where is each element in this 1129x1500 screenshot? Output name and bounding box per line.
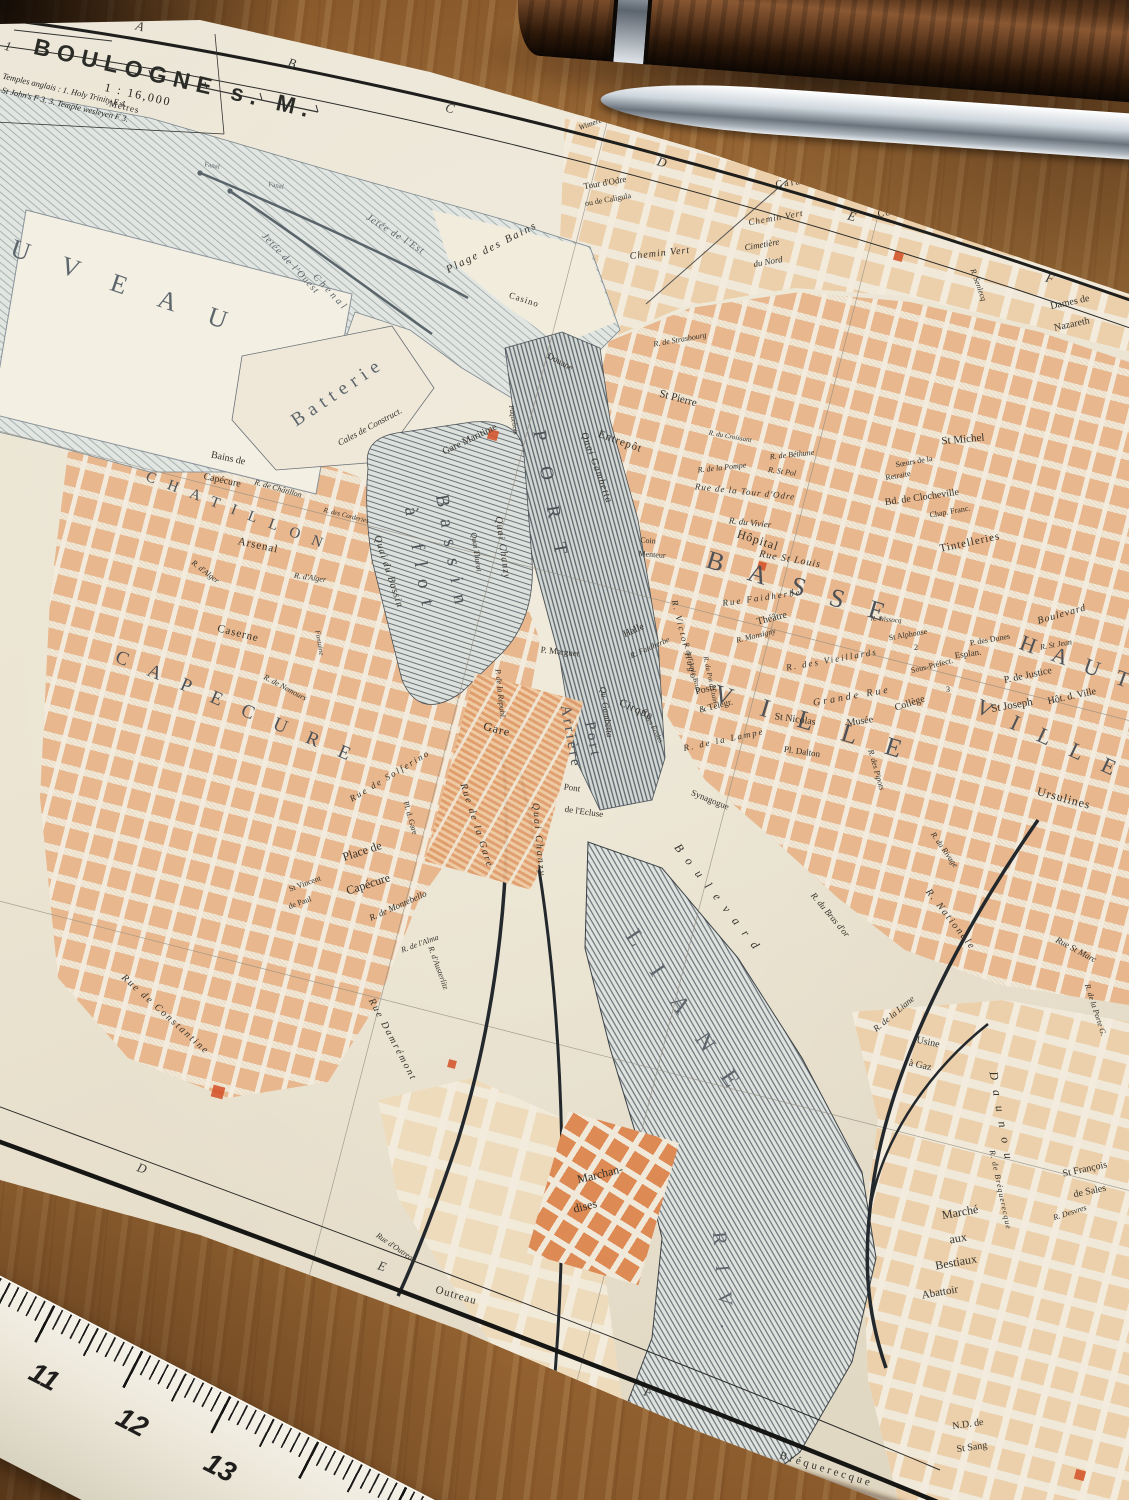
map-label: Arrière [557, 704, 583, 770]
map-label: St Michel [941, 433, 985, 448]
map-label: R. de la Liane [872, 994, 916, 1033]
map-label: Rue Faidherbe [722, 588, 802, 608]
map-label: R. Faidherbe [629, 636, 671, 660]
map-label: ou de Caligula [584, 192, 631, 208]
map-label: 2 [914, 644, 918, 652]
map-label: Bains de [210, 451, 246, 468]
map-label: 3 [946, 686, 950, 694]
map-label: R. du Bras d'or [809, 891, 851, 939]
map-label: Collège [894, 694, 927, 713]
map-label: Quai du Bassin [372, 534, 405, 609]
map-label: Rue de Constantine [119, 973, 211, 1057]
map-label: Chemin Vert [748, 209, 804, 228]
map-label: P. de la Républ. [493, 669, 506, 720]
map-label: Dames de [1050, 294, 1091, 312]
map-label: Jetée de l'Est [364, 213, 426, 257]
map-label: Cimetière [744, 238, 780, 253]
map-label: Menteur [638, 550, 666, 560]
map-label: Synagogue [690, 788, 730, 811]
map-label: Quai Thurot [469, 532, 482, 572]
map-label: Gare [482, 720, 511, 738]
map-label: Théâtre [756, 610, 788, 627]
map-label: Grande Rue [812, 685, 891, 708]
map-label: de l'Ecluse [564, 805, 604, 819]
map-label: dises [572, 1197, 598, 1214]
map-label: Port [581, 720, 602, 759]
map-label: Quai Chanzy [530, 802, 546, 877]
map-label: Outreau [434, 1285, 478, 1307]
map-label: N.D. de [952, 1418, 984, 1432]
grid-letter: F [1044, 271, 1055, 286]
map-label: Place de [341, 839, 383, 863]
grid-letter: D [656, 154, 669, 169]
map-label: St Sang [956, 1441, 988, 1455]
map-label: Bd. de Clocheville [884, 488, 959, 508]
map-label: Qu. Gambetta [598, 686, 614, 738]
map-label: Entrepôt [597, 429, 644, 455]
map-label: R. de Strasbourg [653, 331, 707, 348]
grid-letter: E [376, 1259, 388, 1274]
map-label: Casino [508, 291, 540, 309]
map-label: P. de Justice [1003, 666, 1053, 686]
ruler-number: 14 [287, 1492, 329, 1500]
map-label: R. de la Porte G. [1083, 983, 1107, 1037]
map-label: Tour d'Odre [583, 175, 627, 191]
map-label: Jetée de l'Ouest [259, 232, 320, 297]
map-label: RIV. [709, 1231, 739, 1349]
map-label: Pl. d. Gare [401, 800, 418, 835]
map-label: R. de Nemours [262, 673, 308, 702]
map-label: Plage des Bains [445, 220, 540, 276]
map-label: Hôpital [736, 528, 781, 553]
ruler-number: 11 [24, 1356, 65, 1398]
map-label: Retraite [885, 470, 911, 482]
pen-ring [609, 0, 658, 64]
map-label: Capécure [345, 871, 392, 896]
map-label: Rue de la Gare [458, 782, 495, 869]
map-label: de Sales [1073, 1184, 1107, 1201]
map-label: Quai Chanzy [493, 516, 512, 580]
map-label: Chap. Franc. [929, 504, 971, 519]
map-label: R. d'Alger [293, 572, 326, 584]
map-label: R. St Pol [767, 466, 796, 478]
map-label: R. de la Lampe [683, 727, 766, 753]
map-label: St Vincent [288, 875, 322, 894]
grid-letter: D [136, 1160, 149, 1175]
map-label: LIANE [621, 925, 759, 1114]
map-label: PORT [529, 429, 574, 581]
map-label: Nazareth [1053, 316, 1090, 333]
map-label: Usine [916, 1036, 941, 1051]
map-label: Boulevard [1036, 603, 1087, 626]
map-label: Gare Maritime [441, 423, 499, 458]
ruler-number: 12 [111, 1401, 153, 1444]
map-label: Bestiaux [934, 1252, 977, 1271]
map-label: R. Nationale [923, 888, 977, 953]
map-label: Arsenal [237, 536, 280, 555]
map-label: de Paul [287, 895, 312, 911]
map-label: Pont [563, 782, 581, 793]
map-label: R. du Vivier [728, 516, 771, 529]
map-label: Paquebots [507, 405, 519, 435]
grid-letter: E [846, 209, 857, 224]
map-label: P. Marguet [540, 645, 580, 658]
map-label: R. Monsigny [735, 627, 776, 645]
map-label: Fontaine [313, 630, 324, 656]
map-label: R. d'Alger [190, 559, 220, 585]
map-label: R. Desvres [1052, 1204, 1087, 1222]
map-label: R. d'Austerlitz [427, 945, 450, 990]
map-label: Douane [546, 351, 575, 372]
grid-letter: C [444, 101, 456, 116]
photo-antique-map-on-desk: BOULOGNE s. M. 1 : 16,000 Mètres Temples… [0, 0, 1129, 1500]
map-label: VILLE [711, 681, 934, 772]
map-label: R. du Rivage [929, 831, 959, 869]
map-label: Sœurs de la [895, 455, 933, 469]
map-label: St François [1062, 1160, 1108, 1179]
map-label: Ursulines [1036, 785, 1092, 811]
grid-letter: B [286, 56, 297, 71]
map-label: CAPECURE [113, 647, 374, 772]
map-label: Rue Damrémont [366, 997, 418, 1083]
grid-letter: F [642, 1385, 654, 1400]
map-label: Tintelleries [939, 531, 1002, 555]
grid-letter: 1 [3, 39, 12, 53]
map-label: Boulevard [672, 841, 767, 958]
map-label: Rue de la Tour d'Odre [694, 482, 795, 501]
map-label: Abattoir [921, 1284, 959, 1301]
map-label: Marchan- [576, 1163, 624, 1186]
map-label: R. Senlecq [968, 268, 987, 302]
map-label: Coin [640, 536, 656, 545]
map-label: R. de Montebello [368, 889, 428, 922]
map-label: Fanal [204, 161, 221, 171]
map-label: Marché [941, 1203, 979, 1221]
map-label: UVEAU [7, 235, 262, 345]
map-label: R. des Corderies [323, 507, 370, 525]
map-label: Sous-Préfect. [910, 657, 954, 675]
map-label: R. du Croissant [708, 430, 752, 444]
map-label: R. de Béthune [769, 449, 814, 462]
map-label: R. des Vieillards [786, 648, 879, 673]
map-label: Pl. Dalton [783, 745, 820, 759]
map-label: aux [948, 1231, 967, 1246]
map-label: du Nord [753, 255, 784, 269]
map-label: Halle [622, 622, 646, 640]
map-label: Chemin Vert [629, 246, 690, 262]
map-label: à Gaz [908, 1059, 933, 1074]
map-label: Fanal [268, 181, 285, 191]
ruler-number: 13 [199, 1447, 241, 1490]
map-label: R. de la Pompe [697, 461, 746, 474]
map-label: Capécure [202, 472, 241, 490]
map-label: VILLE [973, 695, 1129, 788]
map-label: P. des Dunes [969, 633, 1010, 648]
map-label: Rue St Marc [1054, 936, 1098, 965]
map-label: à flot [401, 505, 439, 618]
map-label: Esplan. [954, 648, 982, 661]
map-label: St Pierre [658, 389, 698, 410]
map-label: R. de Châtillon [254, 478, 303, 499]
map-label: Hôt. d. Ville [1047, 687, 1097, 707]
map-label: Cales de Construct. [336, 406, 403, 447]
map-label: Bassin [432, 493, 472, 617]
map-label: Caserne [216, 624, 260, 645]
map-label: R. du Pot d'Étain [702, 656, 719, 705]
